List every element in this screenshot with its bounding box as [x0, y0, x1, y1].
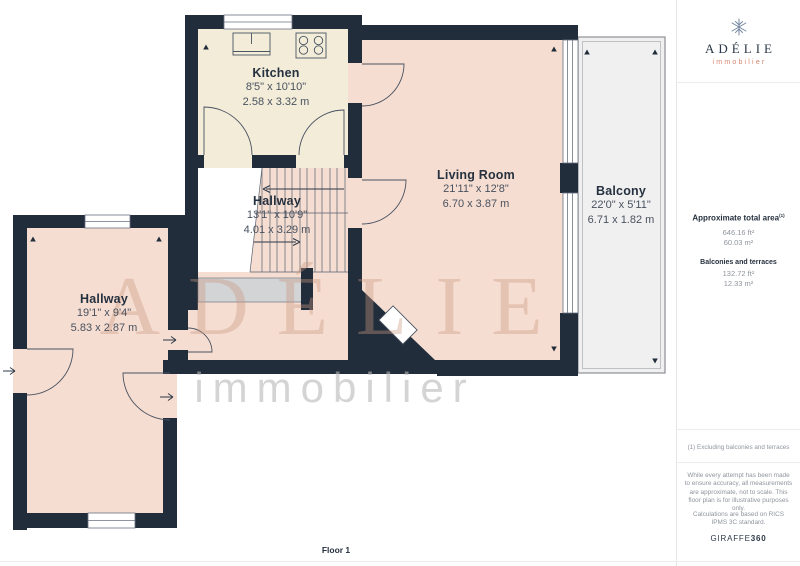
balconies-imperial: 132.72 ft² [677, 269, 800, 280]
footnote-marker: (1) [779, 213, 785, 218]
under-stairs-slab [198, 278, 302, 302]
room-name: Kitchen [243, 66, 310, 80]
room-dim-imperial: 21'11" x 12'8" [437, 182, 515, 197]
area-summary: Approximate total area(1) 646.16 ft² 60.… [677, 213, 800, 290]
area-footnote: (1) Excluding balconies and terraces [681, 444, 796, 451]
room-dim-metric: 6.71 x 1.82 m [588, 213, 655, 228]
room-dim-imperial: 19'1" x 9'4" [71, 306, 138, 321]
room-label-kitchen: Kitchen 8'5" x 10'10" 2.58 x 3.32 m [243, 66, 310, 109]
total-area-heading-text: Approximate total area [692, 214, 779, 223]
room-dim-metric: 6.70 x 3.87 m [437, 197, 515, 212]
room-dim-imperial: 22'0" x 5'11" [588, 198, 655, 213]
floor-label: Floor 1 [322, 545, 350, 555]
provider-name: GIRAFFE [710, 534, 750, 543]
room-label-hallway-stairs: Hallway 13'1" x 10'9" 4.01 x 3.29 m [244, 194, 311, 237]
room-label-balcony: Balcony 22'0" x 5'11" 6.71 x 1.82 m [588, 184, 655, 227]
balconies-heading: Balconies and terraces [677, 259, 800, 266]
room-name: Living Room [437, 168, 515, 182]
room-label-living-room: Living Room 21'11" x 12'8" 6.70 x 3.87 m [437, 168, 515, 211]
floorplan-drawing [0, 0, 676, 566]
room-name: Hallway [71, 292, 138, 306]
info-sidebar: ADÉLIE immobilier Approximate total area… [676, 0, 800, 566]
brand-block: ADÉLIE immobilier [677, 0, 800, 83]
floorplan-page: ADÉLIE immobilier Kitchen 8'5" x 10'10" … [0, 0, 800, 566]
total-area-heading: Approximate total area(1) [677, 213, 800, 223]
corridor-floor [188, 310, 348, 360]
balcony-glazing-upper [563, 40, 578, 163]
room-name: Hallway [244, 194, 311, 208]
room-dim-metric: 5.83 x 2.87 m [71, 321, 138, 336]
snowflake-icon [729, 17, 749, 37]
standard-note: Calculations are based on RICS IPMS 3C s… [686, 511, 791, 528]
room-label-hallway-main: Hallway 19'1" x 9'4" 5.83 x 2.87 m [71, 292, 138, 335]
balconies-metric: 12.33 m² [677, 279, 800, 290]
room-dim-metric: 2.58 x 3.32 m [243, 95, 310, 110]
room-dim-imperial: 8'5" x 10'10" [243, 80, 310, 95]
total-area-metric: 60.03 m² [677, 238, 800, 249]
page-bottom-divider [0, 561, 800, 562]
divider [677, 429, 800, 430]
room-dim-metric: 4.01 x 3.29 m [244, 223, 311, 238]
brand-tagline: immobilier [711, 59, 767, 66]
room-name: Balcony [588, 184, 655, 198]
total-area-imperial: 646.16 ft² [677, 228, 800, 239]
balcony-glazing-lower [563, 193, 578, 313]
hallway-floor-lower [27, 360, 163, 513]
divider [677, 462, 800, 463]
disclaimer-text: While every attempt has been made to ens… [684, 472, 793, 513]
provider-suffix: 360 [751, 534, 767, 543]
brand-name: ADÉLIE [701, 41, 776, 57]
provider-logo: GIRAFFE360 [677, 534, 800, 543]
room-dim-imperial: 13'1" x 10'9" [244, 208, 311, 223]
